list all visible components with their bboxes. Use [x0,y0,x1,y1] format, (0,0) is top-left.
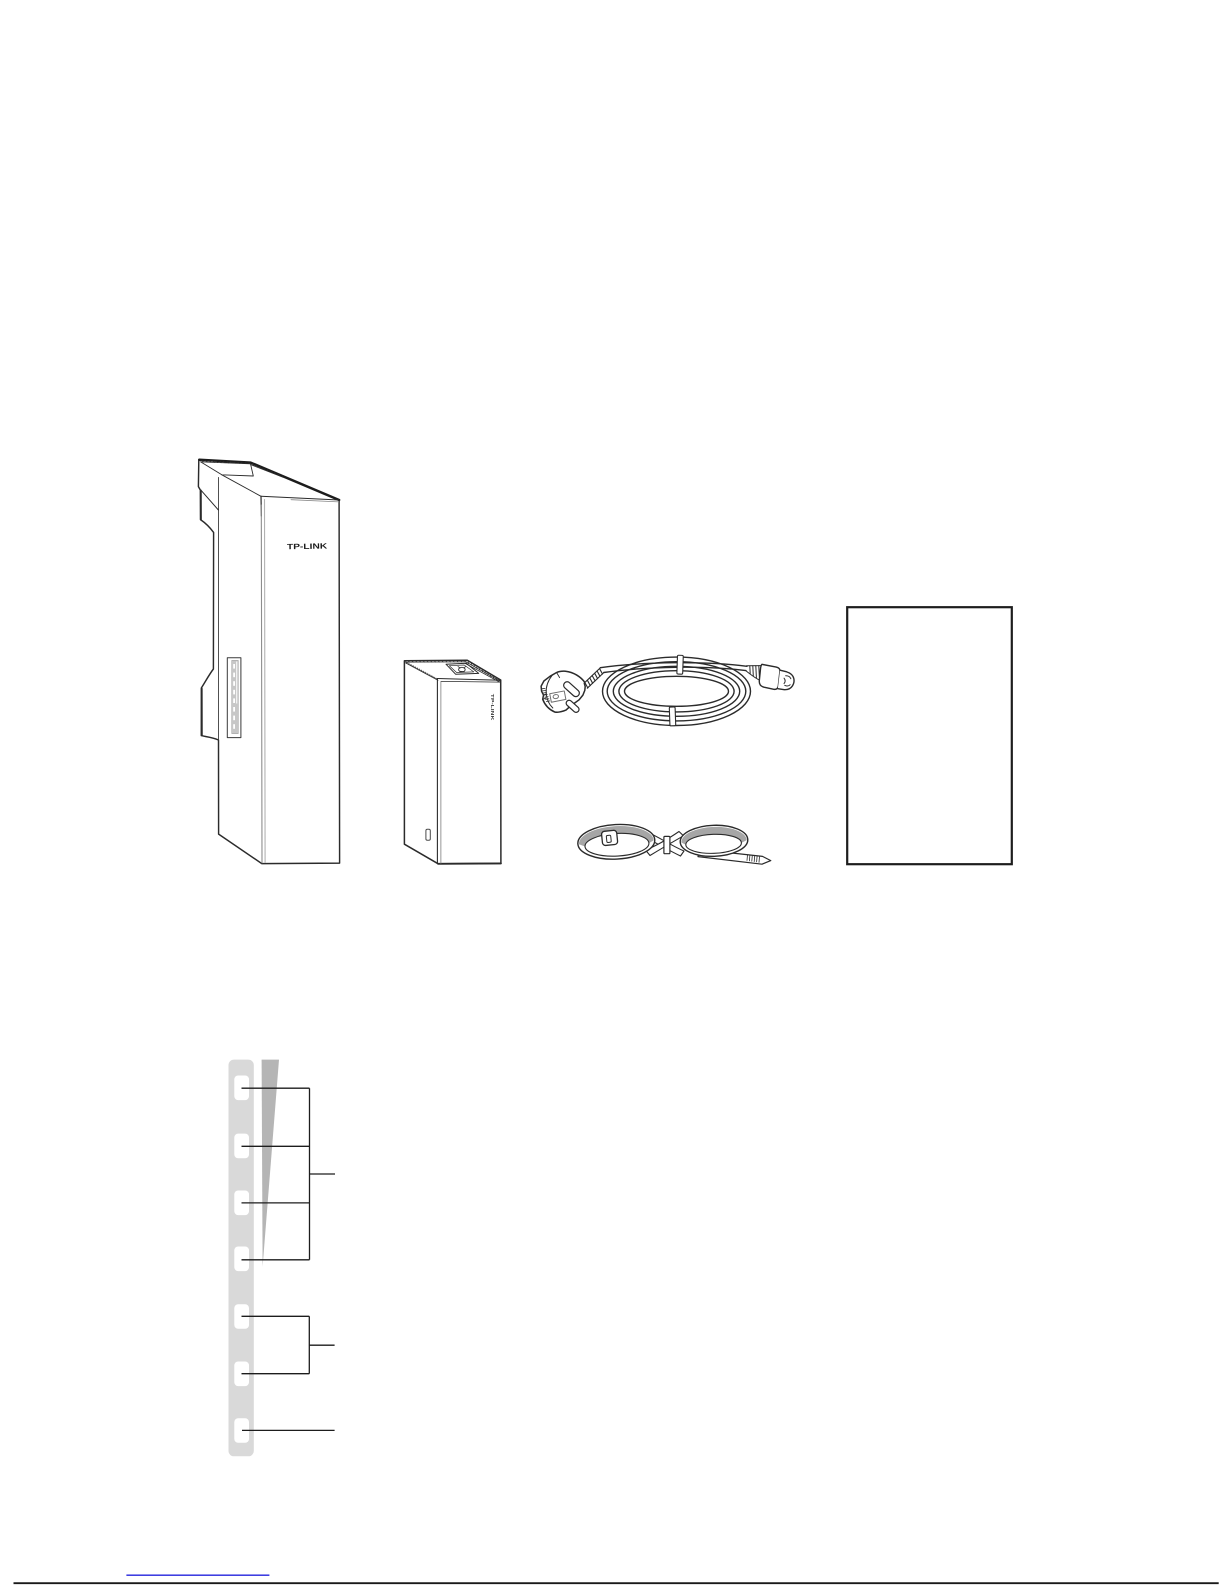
svg-text:TP-LINK: TP-LINK [287,541,328,551]
svg-text:TP-LINK: TP-LINK [490,694,495,722]
